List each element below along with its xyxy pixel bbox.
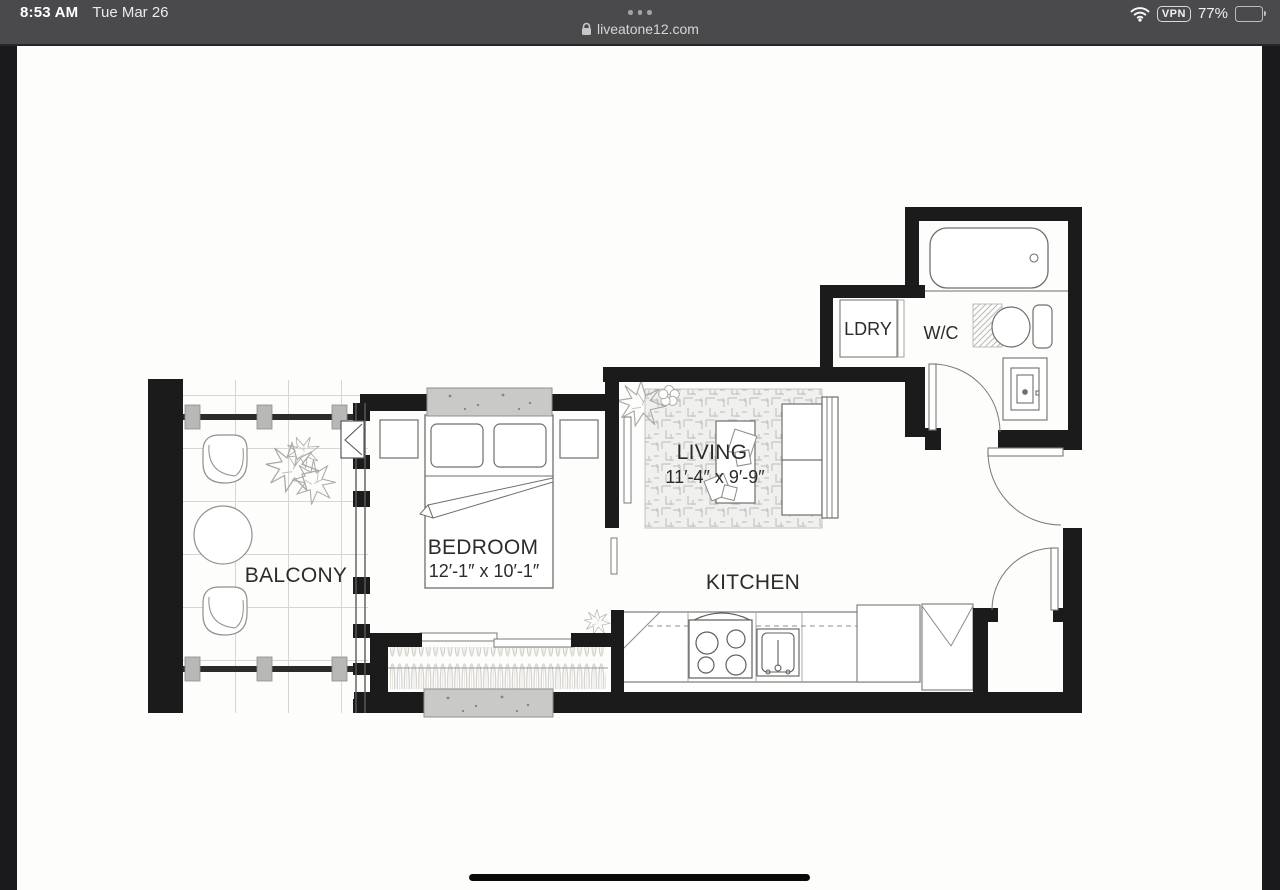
kitchen-sink — [757, 629, 799, 676]
address-bar[interactable]: liveatone12.com — [510, 21, 770, 37]
toilet — [992, 305, 1052, 348]
ipad-screen: 8:53 AM Tue Mar 26 liveatone12.com — [0, 0, 1280, 890]
entry-door-leaf — [988, 448, 1063, 456]
laundry-label: LDRY — [844, 319, 892, 339]
tv-console — [624, 417, 631, 503]
living-dimensions: 11′-4″ x 9′-9″ — [665, 467, 765, 487]
nightstand — [380, 420, 418, 458]
status-date: Tue Mar 26 — [92, 4, 168, 21]
pillow — [494, 424, 546, 467]
balcony-chair — [203, 435, 247, 483]
closet-plant — [584, 610, 610, 634]
status-time: 8:53 AM — [20, 4, 78, 21]
vpn-badge: VPN — [1157, 6, 1191, 22]
dishwasher-cabinet — [857, 605, 920, 682]
floor-plan-image[interactable]: LIVING 11′-4″ x 9′-9″ BEDROOM 12′-1″ x 1… — [0, 0, 1280, 890]
pillow — [431, 424, 483, 467]
nightstand — [560, 420, 598, 458]
sliding-door — [494, 639, 573, 647]
balcony-area — [183, 380, 368, 713]
bedroom-dimensions: 12′-1″ x 10′-1″ — [429, 561, 540, 581]
battery-icon — [1235, 6, 1266, 22]
hall-closet-door-leaf — [1051, 548, 1058, 610]
stove — [689, 613, 752, 678]
status-bar: 8:53 AM Tue Mar 26 liveatone12.com — [0, 0, 1280, 46]
living-label: LIVING — [677, 441, 748, 464]
bedroom-slider-leaf — [611, 538, 617, 574]
wc-label: W/C — [924, 323, 959, 343]
sofa — [782, 397, 838, 518]
battery-percent: 77% — [1198, 5, 1228, 22]
kitchen-area — [622, 604, 973, 690]
status-indicators: VPN 77% — [1130, 5, 1266, 22]
left-letterbox-bar — [0, 46, 17, 890]
bedroom-label: BEDROOM — [428, 536, 539, 559]
bedroom-closet — [388, 610, 610, 689]
wc-door-swing — [932, 364, 1000, 432]
dot-icon — [647, 10, 652, 15]
clock-area: 8:53 AM Tue Mar 26 — [20, 4, 169, 21]
lock-icon — [581, 22, 592, 36]
entry-door-swing — [988, 452, 1061, 525]
closet-dresser — [424, 689, 553, 717]
balcony-table — [194, 506, 252, 564]
kitchen-label: KITCHEN — [706, 571, 800, 594]
headboard — [427, 388, 552, 416]
hall-closet-door-swing — [992, 548, 1054, 610]
url-domain: liveatone12.com — [597, 21, 699, 37]
right-letterbox-bar — [1262, 46, 1280, 890]
balcony-label: BALCONY — [245, 564, 347, 587]
balcony-door-symbol — [341, 421, 364, 458]
fridge — [922, 604, 973, 690]
wifi-icon — [1130, 6, 1150, 22]
dot-icon — [628, 10, 633, 15]
wc-door-leaf — [929, 364, 936, 430]
sliding-door — [420, 633, 497, 641]
balcony-chair — [203, 587, 247, 635]
dot-icon — [638, 10, 643, 15]
home-indicator[interactable] — [469, 874, 810, 881]
more-options-dots-icon[interactable] — [510, 10, 770, 15]
bathroom-sink — [1003, 358, 1047, 420]
